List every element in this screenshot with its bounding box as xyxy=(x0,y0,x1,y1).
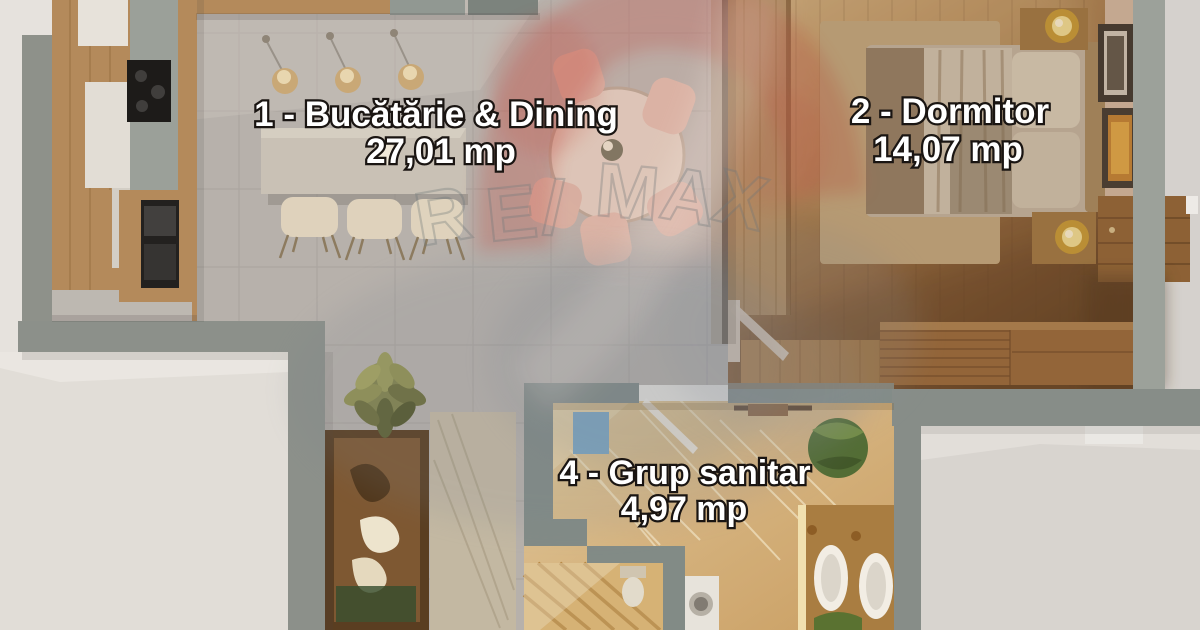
svg-text:2 - Dormitor: 2 - Dormitor xyxy=(851,92,1050,131)
svg-text:4 - Grup sanitar: 4 - Grup sanitar xyxy=(559,454,810,492)
svg-text:4,97 mp: 4,97 mp xyxy=(621,490,748,528)
svg-text:14,07 mp: 14,07 mp xyxy=(873,130,1023,169)
svg-text:27,01 mp: 27,01 mp xyxy=(366,132,516,171)
svg-text:1 - Bucătărie & Dining: 1 - Bucătărie & Dining xyxy=(254,95,618,134)
